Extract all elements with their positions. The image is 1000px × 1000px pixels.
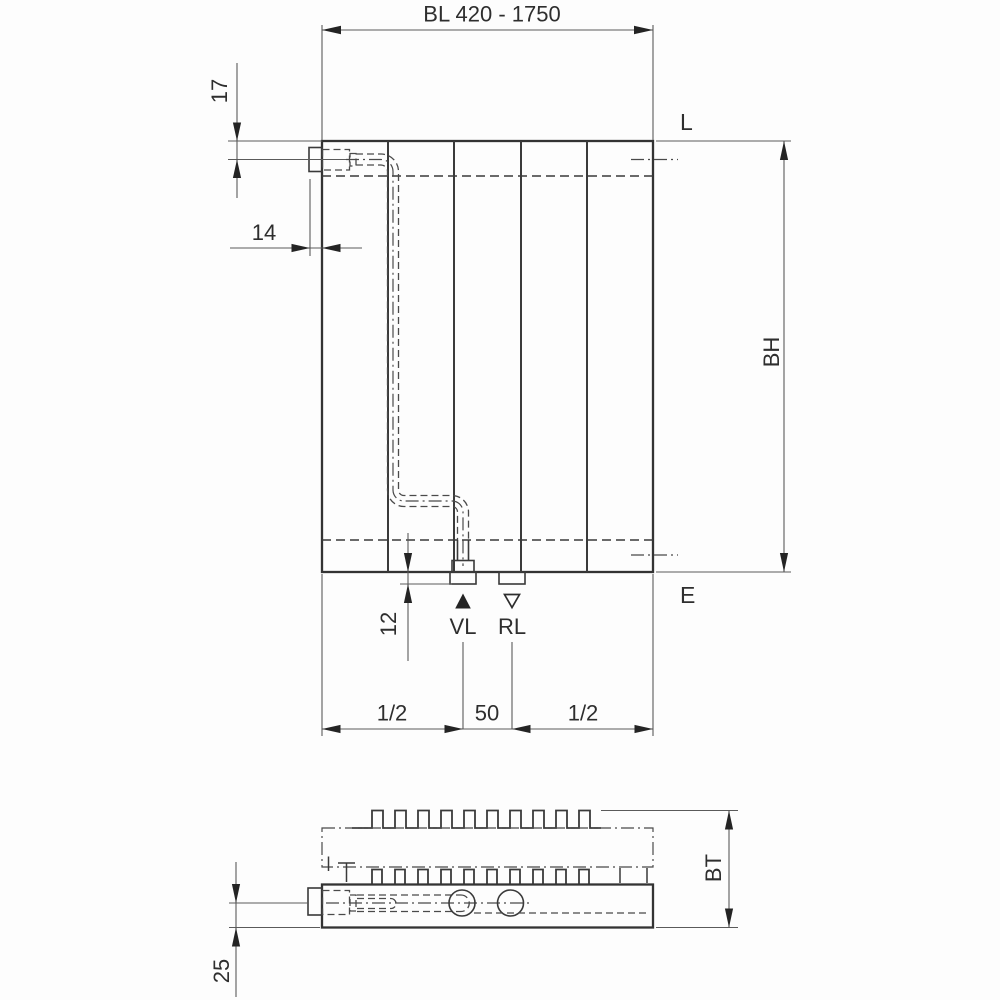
arrowhead-up-icon (404, 584, 412, 603)
arrowhead-down-icon (404, 553, 412, 572)
arrowhead-up-icon (233, 160, 241, 179)
dim-left-span-text: 1/2 (377, 701, 408, 726)
dim-right-span-text: 1/2 (568, 701, 599, 726)
arrowhead-down-icon (780, 553, 788, 572)
dim-overall-height: BH (656, 141, 791, 572)
valve-and-pipe (309, 148, 474, 573)
dim-tail-text: 12 (376, 612, 401, 636)
arrowhead-right-icon (634, 26, 653, 34)
top-view-dimensions: BT 25 (209, 811, 738, 998)
plan-valve-and-pipe (308, 888, 648, 916)
supply-connection-stub (450, 572, 476, 584)
dim-pipe-offset-text: 25 (209, 959, 234, 983)
radiator-dimension-drawing: BL 420 - 1750 17 14 BH L E (0, 0, 1000, 1000)
convector-fins-front-row (372, 870, 589, 885)
arrowhead-left-icon (322, 725, 341, 733)
supply-flow-triangle-icon (455, 594, 471, 609)
front-view (309, 141, 678, 609)
arrowhead-down-icon (233, 123, 241, 142)
arrowhead-down-icon (232, 884, 240, 903)
drain-label-text: E (680, 582, 695, 608)
radiator-panel-joints (388, 141, 587, 572)
arrowhead-down-icon (725, 909, 733, 928)
arrowhead-left-icon (512, 725, 531, 733)
arrowhead-right-icon (292, 244, 311, 252)
dim-width-extension-lines (322, 25, 653, 140)
arrowhead-right-icon (445, 725, 464, 733)
top-view (308, 811, 653, 928)
dim-side-offset: 14 (230, 179, 362, 256)
dim-depth-text: BT (701, 854, 726, 882)
arrowhead-up-icon (780, 141, 788, 160)
convector-fins-back-row (352, 811, 601, 829)
dim-center-span-text: 50 (475, 701, 499, 726)
plan-valve-connection-stub (308, 888, 322, 915)
dim-height-text: BH (759, 337, 784, 368)
convector-shroud-outline (322, 828, 653, 867)
front-view-dimensions: BL 420 - 1750 17 14 BH L E (207, 2, 791, 737)
dim-pipe-offset: 25 (209, 862, 320, 997)
radiator-body-outline (322, 141, 653, 572)
arrowhead-right-icon (635, 725, 654, 733)
supply-label-text: VL (450, 614, 477, 639)
arrowhead-left-icon (322, 26, 341, 34)
vent-label-text: L (680, 109, 693, 135)
arrowhead-left-icon (322, 244, 341, 252)
dim-side-offset-text: 14 (252, 220, 276, 245)
pipe-outer-edge (356, 154, 469, 540)
panel-plan-outline (322, 885, 653, 928)
dim-connection-spacing: 1/2 50 1/2 (322, 574, 653, 736)
dim-top-offset: 17 (207, 63, 346, 198)
return-connection-stub (499, 572, 525, 584)
pipe-centerline (346, 160, 463, 567)
dim-overall-width: BL 420 - 1750 (322, 2, 653, 141)
arrowhead-up-icon (725, 811, 733, 830)
dim-top-offset-text: 17 (207, 79, 232, 103)
return-label-text: RL (498, 614, 526, 639)
pipe-tail-fitting (452, 561, 474, 573)
radiator-technical-drawing-page: BL 420 - 1750 17 14 BH L E (0, 0, 1000, 1000)
dim-width-text: BL 420 - 1750 (423, 2, 560, 27)
arrowhead-up-icon (232, 928, 240, 947)
return-flow-triangle-icon (505, 595, 520, 608)
pipe-inner-edge (356, 165, 458, 540)
